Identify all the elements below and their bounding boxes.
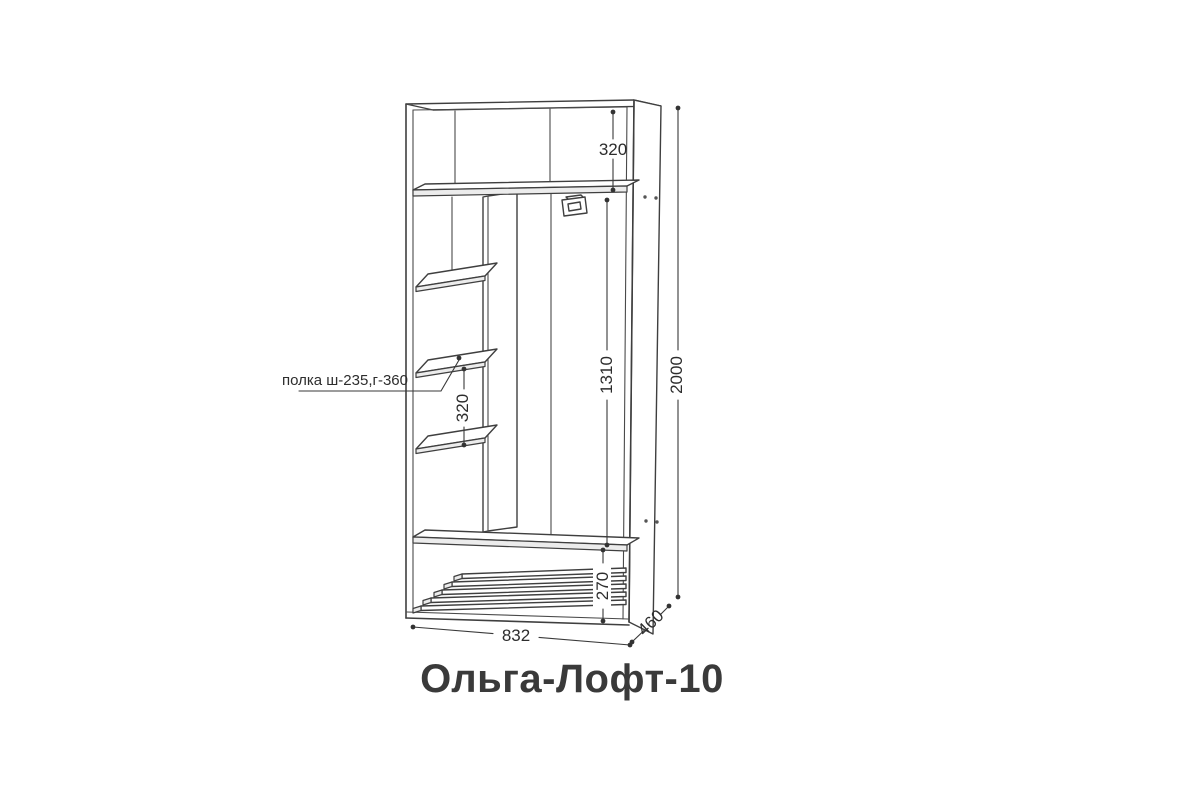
leader-dot: [457, 356, 462, 361]
hanger-rod-bracket: [562, 195, 587, 216]
top-shelf: [413, 180, 639, 196]
vertical-divider: [483, 192, 517, 532]
slat-4-cap: [444, 582, 452, 589]
pin-hole: [643, 195, 646, 198]
dimension-width: 832: [411, 625, 633, 648]
dim-left-shelf-gap-value: 320: [453, 394, 472, 422]
dimension-height: 2000: [667, 106, 686, 600]
bottom-outer-edge: [406, 618, 629, 625]
dim-dot: [601, 619, 606, 624]
dim-dot: [676, 595, 681, 600]
dim-bottom-section-value: 270: [593, 572, 612, 600]
slat-3-cap: [434, 590, 442, 597]
dim-height-value: 2000: [667, 356, 686, 394]
dim-dot: [630, 640, 635, 645]
wardrobe-technical-drawing: 320 1310 320 270 2000 832 460: [0, 0, 1200, 798]
dim-hanging-section-value: 1310: [597, 356, 616, 394]
dim-dot: [611, 188, 616, 193]
pin-hole: [644, 519, 647, 522]
dim-width-value: 832: [502, 626, 530, 645]
dim-dot: [411, 625, 416, 630]
dim-dot: [611, 110, 616, 115]
dim-dot: [605, 198, 610, 203]
pin-hole: [654, 196, 657, 199]
dim-dot: [601, 548, 606, 553]
dim-dot: [605, 543, 610, 548]
dim-top-section-value: 320: [599, 140, 627, 159]
dim-dot: [667, 604, 672, 609]
dim-dot: [462, 367, 467, 372]
dimension-hanging-section: 1310: [597, 198, 616, 548]
dimension-bottom-section: 270: [593, 548, 612, 624]
page-title: Ольга-Лофт-10: [420, 657, 724, 701]
pin-hole: [655, 520, 658, 523]
technical-drawing-page: 320 1310 320 270 2000 832 460: [0, 0, 1200, 798]
shelf-label: полка ш-235,г-360: [282, 372, 408, 389]
bracket-slot: [568, 202, 581, 211]
slat-2-cap: [423, 598, 431, 605]
bottom-shelf: [413, 530, 639, 551]
dim-dot: [462, 443, 467, 448]
slat-5-cap: [454, 574, 462, 581]
dim-dot: [676, 106, 681, 111]
bottom-inner-edge: [407, 612, 628, 619]
